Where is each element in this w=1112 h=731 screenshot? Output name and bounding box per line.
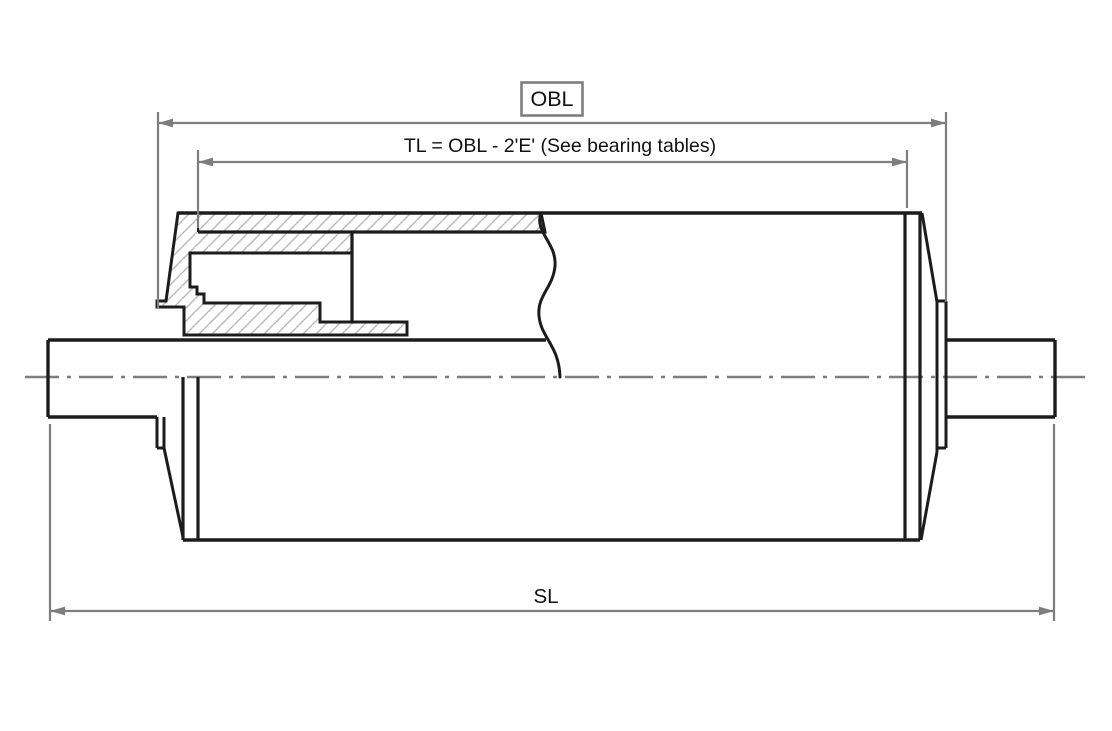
drawing-page: OBL TL = OBL - 2'E' (See bearing tables)… (0, 0, 1112, 731)
sl-arrow-right (1039, 607, 1054, 616)
section-hatch-region (157, 213, 545, 335)
left-bearing-collar (157, 417, 183, 537)
tl-arrow-right (892, 158, 907, 167)
obl-arrow-right (931, 119, 946, 128)
sl-label: SL (533, 585, 558, 608)
tl-formula-label: TL = OBL - 2'E' (See bearing tables) (404, 135, 716, 157)
engineering-drawing-canvas: OBL TL = OBL - 2'E' (See bearing tables)… (0, 0, 1112, 731)
obl-arrow-left (158, 119, 173, 128)
break-line (539, 213, 560, 377)
sl-arrow-left (50, 607, 65, 616)
obl-label: OBL (530, 87, 573, 111)
tl-arrow-left (198, 158, 213, 167)
